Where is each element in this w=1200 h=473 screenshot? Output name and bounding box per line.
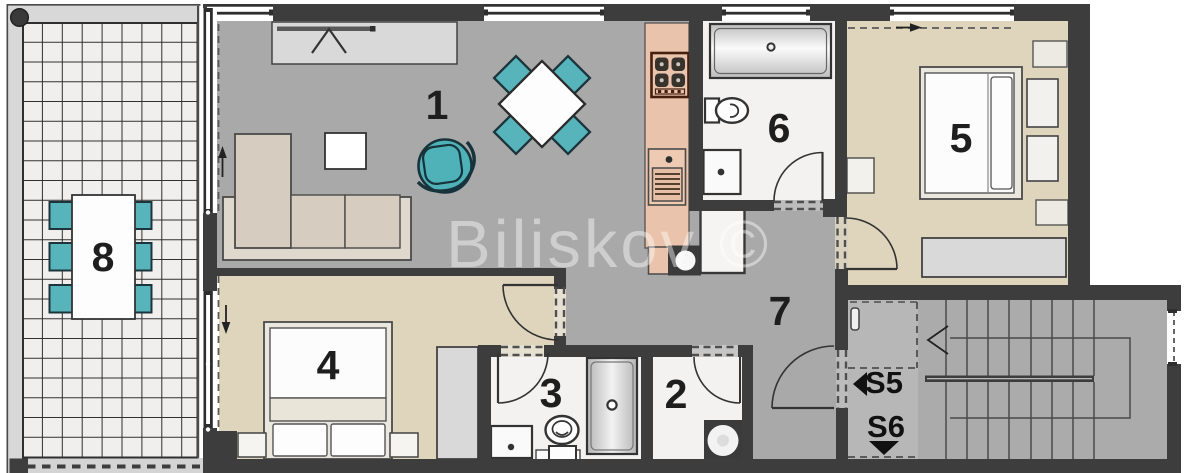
svg-text:Biliskov ©: Biliskov © [446,207,771,282]
svg-text:S6: S6 [867,409,905,444]
svg-text:8: 8 [92,234,115,280]
svg-text:4: 4 [317,342,340,388]
svg-text:2: 2 [665,371,688,417]
svg-text:S5: S5 [865,365,903,400]
svg-text:7: 7 [769,288,792,334]
svg-text:5: 5 [950,115,973,161]
svg-text:1: 1 [426,82,449,128]
svg-text:3: 3 [540,370,563,416]
svg-text:6: 6 [768,105,791,151]
